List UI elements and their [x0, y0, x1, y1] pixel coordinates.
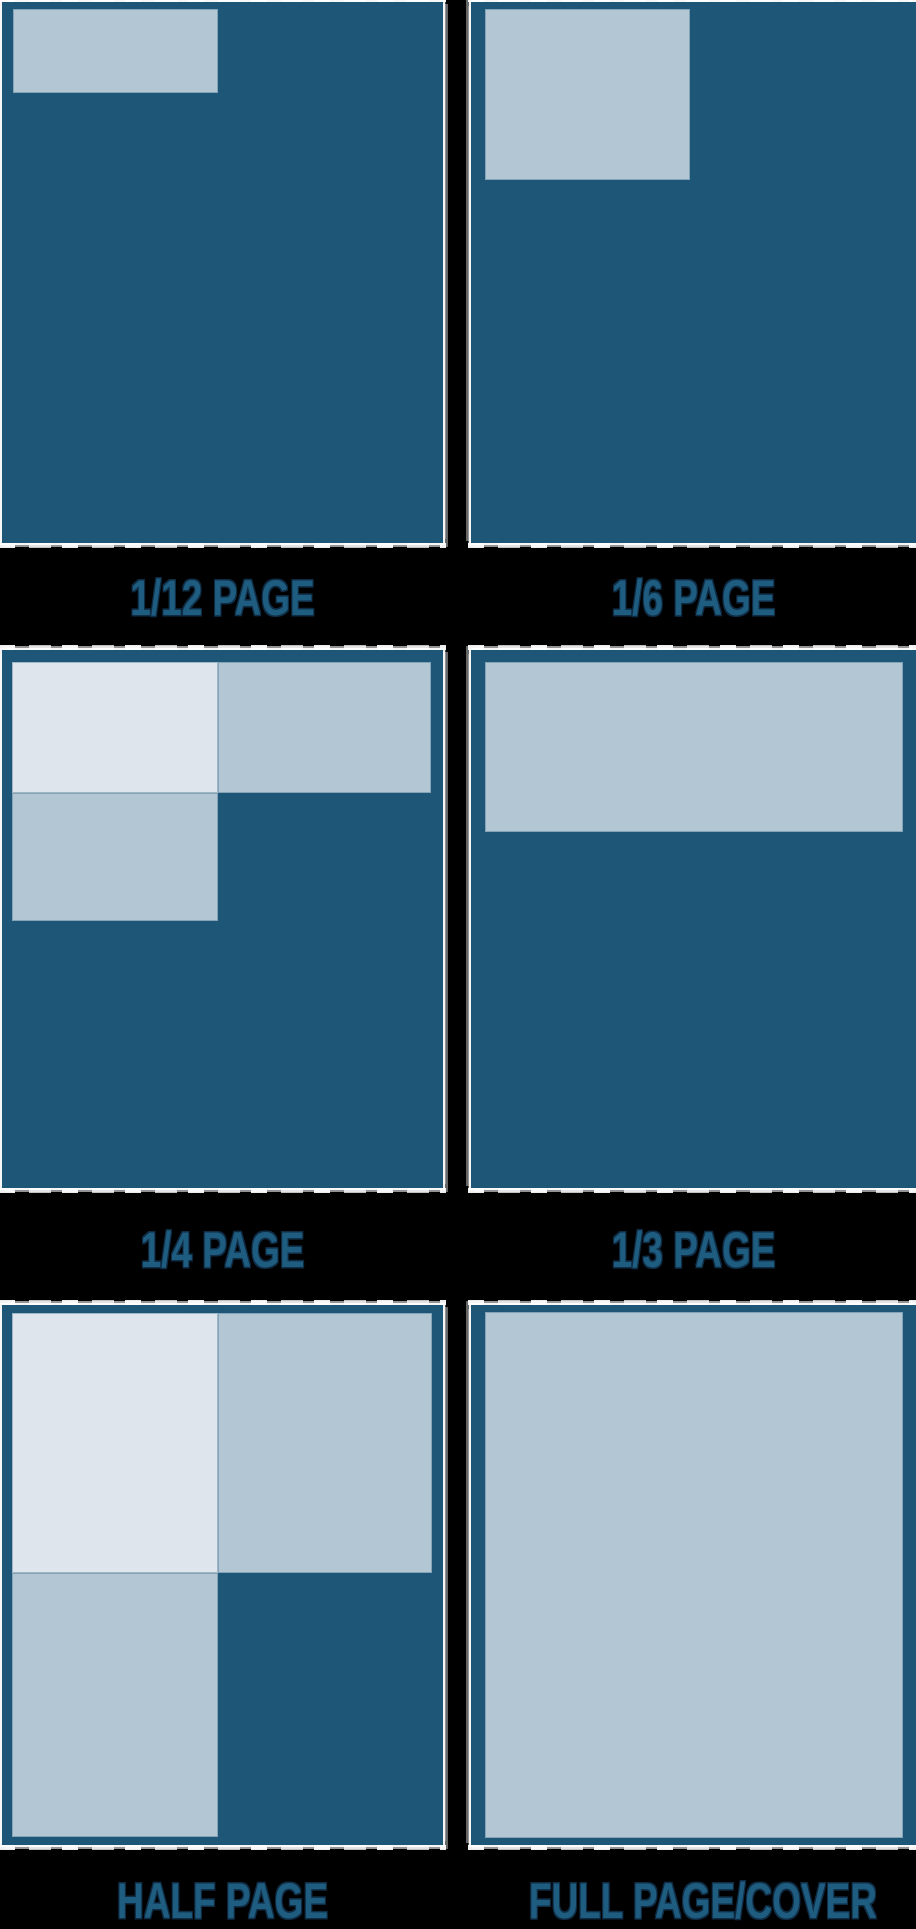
ad-region-half-bottom-left: [12, 1573, 218, 1837]
size-label-1-6-page: 1/6 PAGE: [529, 576, 858, 620]
panel-1-6-page: [471, 2, 916, 543]
size-label-1-4-page: 1/4 PAGE: [59, 1228, 385, 1272]
ad-region-1-3: [485, 662, 903, 832]
panel-1-4-page: [2, 650, 443, 1188]
panel-1-3-page: [471, 650, 916, 1188]
size-label-1-3-page: 1/3 PAGE: [529, 1228, 858, 1272]
ad-region-1-4-top-right: [218, 662, 431, 793]
ad-region-half-top-left: [12, 1313, 218, 1573]
ad-region-1-4-bottom-left: [12, 793, 218, 921]
panel-1-12-page: [2, 2, 443, 543]
ad-region-half-top-right: [218, 1313, 432, 1573]
size-label-half-page: HALF PAGE: [59, 1879, 385, 1923]
ad-region-1-6: [485, 9, 690, 180]
size-label-full-page-cover: FULL PAGE/COVER: [529, 1879, 858, 1923]
panel-full-page-cover: [471, 1305, 916, 1845]
ad-region-full-page: [485, 1312, 903, 1838]
panel-half-page: [2, 1305, 443, 1845]
size-label-1-12-page: 1/12 PAGE: [59, 576, 385, 620]
ad-region-1-4-top-left: [12, 662, 218, 793]
ad-region-1-12: [13, 9, 218, 93]
ad-size-diagram: 1/12 PAGE1/6 PAGE1/4 PAGE1/3 PAGEHALF PA…: [0, 0, 916, 1920]
